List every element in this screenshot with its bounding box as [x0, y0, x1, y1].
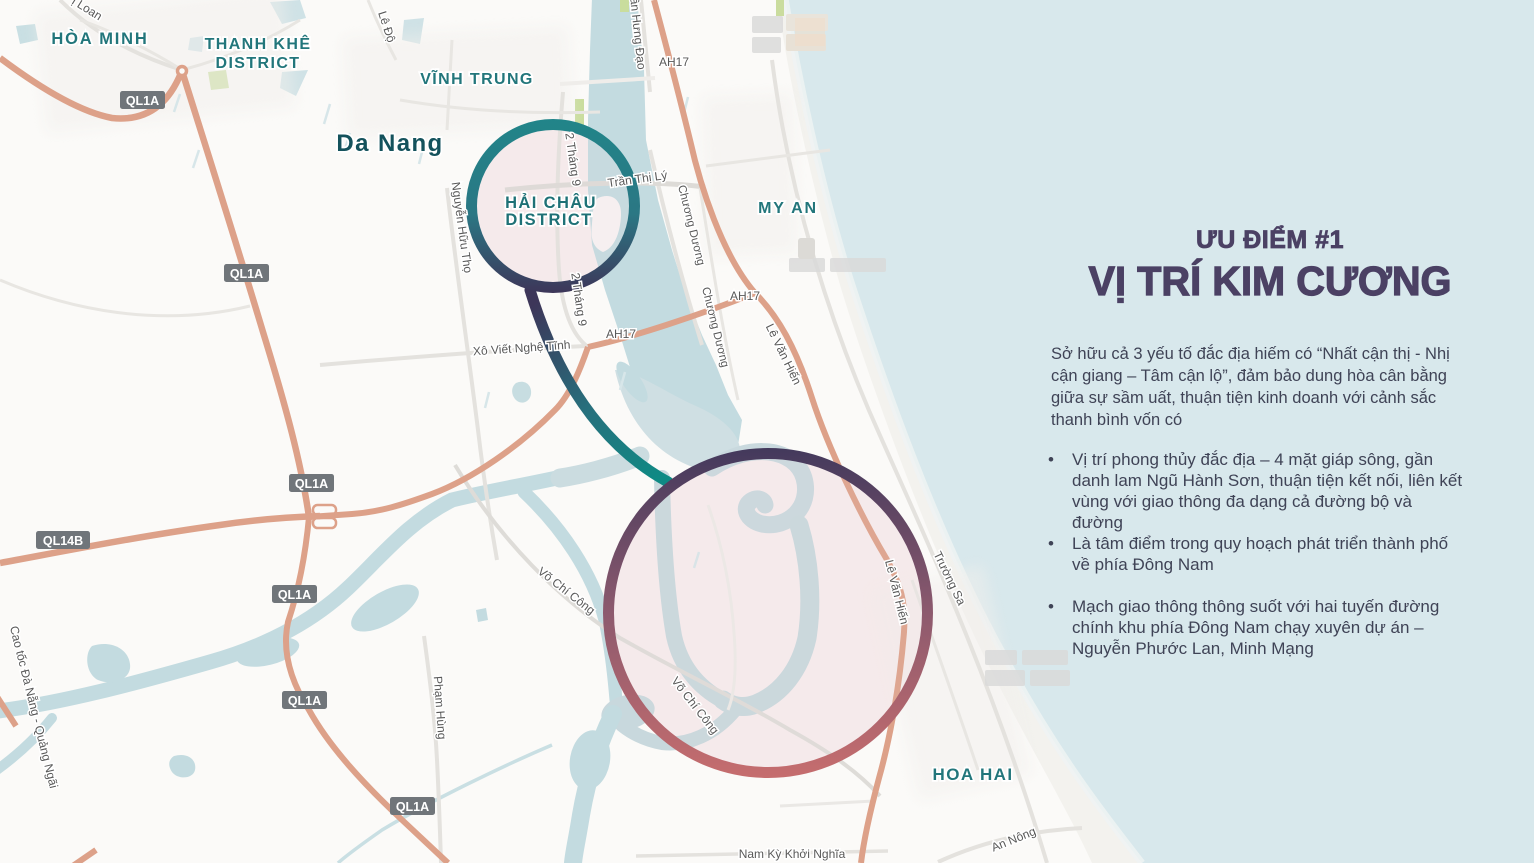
- svg-text:QL1A: QL1A: [396, 800, 429, 814]
- svg-text:MY AN: MY AN: [758, 200, 818, 217]
- svg-text:Da Nang: Da Nang: [336, 130, 443, 157]
- svg-text:AH17: AH17: [659, 55, 689, 69]
- svg-text:QL1A: QL1A: [278, 588, 311, 602]
- svg-text:QL1A: QL1A: [288, 694, 321, 708]
- svg-text:Nam Kỳ Khởi Nghĩa: Nam Kỳ Khởi Nghĩa: [739, 847, 846, 861]
- svg-text:DISTRICT: DISTRICT: [505, 211, 592, 229]
- svg-text:HOA HAI: HOA HAI: [933, 765, 1014, 784]
- svg-text:AH17: AH17: [606, 327, 636, 341]
- svg-text:VĨNH TRUNG: VĨNH TRUNG: [420, 68, 534, 88]
- svg-text:QL14B: QL14B: [43, 534, 83, 548]
- svg-text:QL1A: QL1A: [295, 477, 328, 491]
- svg-text:AH17: AH17: [730, 289, 760, 303]
- svg-text:QL1A: QL1A: [126, 94, 159, 108]
- svg-text:HÒA MINH: HÒA MINH: [51, 29, 148, 48]
- svg-text:THANH KHÊ: THANH KHÊ: [205, 34, 312, 53]
- svg-text:HẢI CHÂU: HẢI CHÂU: [505, 193, 597, 212]
- svg-text:DISTRICT: DISTRICT: [216, 55, 301, 72]
- svg-text:QL1A: QL1A: [230, 267, 263, 281]
